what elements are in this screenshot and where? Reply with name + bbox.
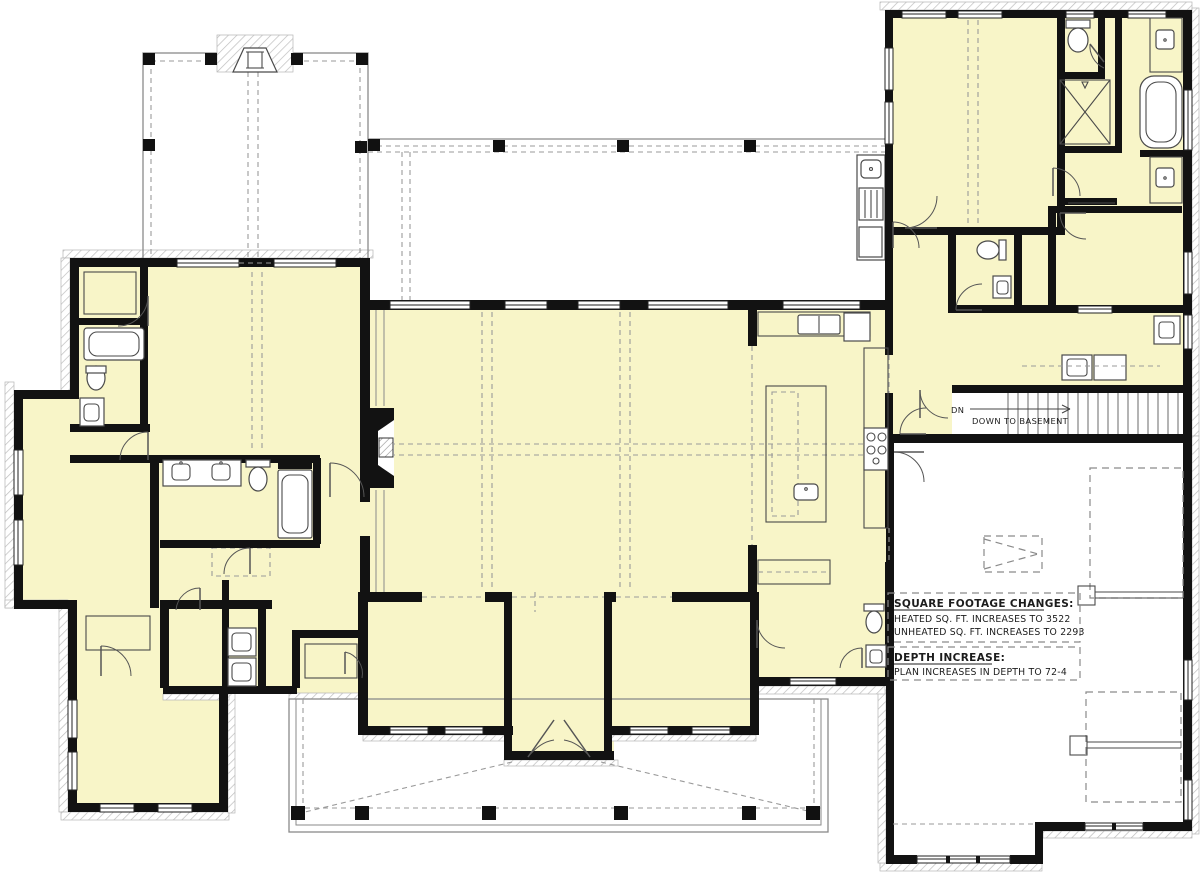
- workbench: [1078, 586, 1183, 605]
- workbench: [1070, 736, 1181, 755]
- sqft-title: SQUARE FOOTAGE CHANGES:: [894, 598, 1074, 610]
- garage-door-opening: [1085, 823, 1143, 830]
- window: [505, 301, 547, 309]
- depth-increase-note: DEPTH INCREASE: PLAN INCREASES IN DEPTH …: [888, 647, 1080, 680]
- annotations: SQUARE FOOTAGE CHANGES: HEATED SQ. FT. I…: [888, 593, 1085, 680]
- linen-cabinet: [278, 458, 312, 469]
- outdoor-cabinet: [859, 227, 882, 257]
- window: [390, 727, 428, 734]
- window: [274, 259, 336, 267]
- bathtub-icon: [278, 470, 312, 538]
- window: [692, 727, 730, 734]
- square-footage-note: SQUARE FOOTAGE CHANGES: HEATED SQ. FT. I…: [888, 593, 1085, 642]
- wing-toilet: [1066, 20, 1090, 52]
- outdoor-kitchen: [857, 155, 885, 260]
- window: [1184, 780, 1192, 820]
- window: [958, 11, 1002, 18]
- sqft-line-1: HEATED SQ. FT. INCREASES TO 3522: [894, 614, 1071, 625]
- window: [14, 520, 23, 565]
- window: [445, 727, 483, 734]
- garage-door-opening: [917, 856, 1010, 863]
- powder-toilet: [864, 604, 884, 633]
- island-sink: [794, 484, 818, 500]
- garage-storage-dashed: [1090, 468, 1183, 598]
- window: [783, 301, 860, 309]
- double-vanity: [163, 460, 241, 486]
- hall-vanity: [1154, 316, 1180, 344]
- refrigerator-icon: [844, 313, 870, 341]
- window: [1066, 11, 1094, 18]
- window: [68, 700, 77, 738]
- depth-title: DEPTH INCREASE:: [894, 652, 1005, 664]
- rear-porch-strip: [368, 139, 885, 300]
- bath3-toilet: [977, 240, 1006, 260]
- freestanding-tub: [1140, 76, 1182, 148]
- stairs-dn-label: DN: [951, 405, 964, 415]
- window: [885, 48, 893, 90]
- window: [100, 804, 134, 812]
- floor-plan-page: DN DOWN TO BASEMENT SQUARE FOOTAGE CHANG…: [0, 0, 1200, 878]
- window: [1184, 315, 1192, 349]
- window: [1128, 11, 1166, 18]
- great-room-kitchen-fill: [360, 300, 893, 601]
- vanity-sink: [80, 398, 104, 426]
- window: [14, 450, 23, 495]
- right-wing-fill: [885, 10, 1192, 386]
- garage-storage-dashed: [1086, 692, 1181, 802]
- bedroom2-fill: [68, 600, 228, 812]
- window: [885, 102, 893, 144]
- window: [1184, 252, 1192, 294]
- window: [578, 301, 620, 309]
- outdoor-sink: [861, 160, 881, 178]
- window: [1184, 660, 1192, 700]
- stairs-down-to-basement-label: DOWN TO BASEMENT: [972, 416, 1069, 426]
- window: [1184, 90, 1192, 150]
- window: [630, 727, 668, 734]
- window: [68, 752, 77, 790]
- window: [390, 301, 470, 309]
- window: [158, 804, 192, 812]
- window: [177, 259, 239, 267]
- attic-pulldown-stair: [984, 536, 1042, 572]
- bathtub-icon: [84, 328, 144, 360]
- front-rooms-fill: [358, 592, 758, 735]
- outdoor-fireplace-icon: [217, 35, 293, 72]
- window: [1078, 306, 1112, 313]
- stairs-to-basement: DN DOWN TO BASEMENT: [951, 393, 1183, 434]
- window: [790, 678, 836, 685]
- toilet-tank: [86, 366, 106, 373]
- depth-line-1: PLAN INCREASES IN DEPTH TO 72-4: [894, 667, 1067, 678]
- rear-grilling-porch: [143, 35, 368, 265]
- window: [902, 11, 946, 18]
- bath3-sink: [993, 276, 1011, 298]
- fireplace: [367, 408, 394, 488]
- window: [648, 301, 728, 309]
- powder-sink: [866, 645, 886, 667]
- floor-plan-drawing: DN DOWN TO BASEMENT SQUARE FOOTAGE CHANG…: [0, 0, 1200, 878]
- garage-details: [893, 468, 1183, 824]
- sqft-line-2: UNHEATED SQ. FT. INCREASES TO 2293: [894, 627, 1085, 638]
